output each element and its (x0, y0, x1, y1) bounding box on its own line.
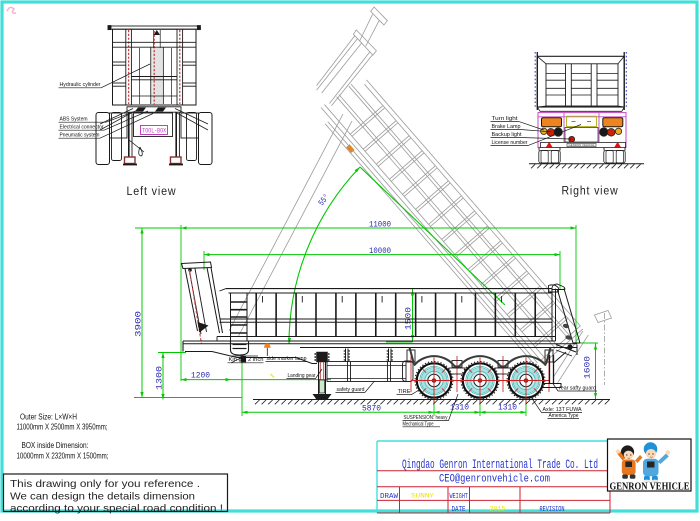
svg-text:We can design the details: We can design the details dimension (10, 491, 195, 503)
svg-text:SUSPENSION: heavy: SUSPENSION: heavy (404, 415, 448, 421)
svg-text:Right view: Right view (562, 183, 619, 197)
svg-text:REVISION: REVISION (540, 506, 565, 514)
svg-text:10000mm X 2320mm X 1500mm;: 10000mm X 2320mm X 1500mm; (17, 450, 109, 460)
svg-text:11000mm X 2500mm X 3950mm;: 11000mm X 2500mm X 3950mm; (17, 421, 108, 431)
svg-text:Electrical connector: Electrical connector (60, 125, 104, 131)
svg-text:GENRON VEHICLE: GENRON VEHICLE (569, 143, 595, 147)
svg-text:TIRE: TIRE (398, 389, 411, 395)
svg-text:3900: 3900 (136, 311, 144, 337)
svg-text:BOX inside Dimension:: BOX inside Dimension: (22, 440, 89, 450)
svg-text:2015: 2015 (490, 505, 506, 513)
svg-text:10000: 10000 (369, 248, 391, 256)
svg-text:DATE: DATE (452, 506, 466, 514)
svg-text:11000: 11000 (369, 221, 391, 229)
svg-text:Kin pin 2 inch: Kin pin 2 inch (229, 357, 264, 363)
svg-text:Pneumatic system: Pneumatic system (60, 133, 100, 139)
svg-text:GENRON VEHICLE: GENRON VEHICLE (610, 482, 690, 493)
svg-text:1300: 1300 (157, 366, 165, 390)
svg-text:ABS System: ABS System (60, 117, 88, 123)
svg-text:DRAW: DRAW (380, 493, 399, 501)
svg-text:SUNNY: SUNNY (411, 492, 434, 499)
svg-text:1600: 1600 (585, 356, 593, 379)
svg-text:Hydraulic cylinder: Hydraulic cylinder (60, 82, 101, 88)
svg-text:5870: 5870 (362, 405, 381, 413)
svg-text:according to your special: according to your special road condition… (10, 502, 223, 514)
svg-text:TOOL-BOX: TOOL-BOX (142, 128, 166, 135)
svg-text:CEO@genronvehicle.com: CEO@genronvehicle.com (439, 473, 550, 485)
svg-text:safety guard: safety guard (337, 387, 365, 393)
svg-text:1200: 1200 (191, 372, 210, 380)
svg-text:1310: 1310 (498, 404, 517, 412)
svg-text:Landing gear: Landing gear (288, 373, 316, 379)
svg-text:This drawing only for you: This drawing only for you reference . (10, 478, 200, 490)
svg-text:WEIGHT: WEIGHT (450, 493, 469, 501)
svg-text:Axle: 13T FUWA: Axle: 13T FUWA (543, 407, 582, 413)
svg-text:Qingdao Genron International T: Qingdao Genron International Trade Co. L… (402, 457, 598, 472)
svg-text:rear safty guard: rear safty guard (559, 385, 596, 391)
svg-text:Outer Size: L×W×H: Outer Size: L×W×H (20, 412, 77, 422)
svg-text:Left view: Left view (127, 184, 177, 198)
svg-text:side marker lamp: side marker lamp (267, 356, 307, 362)
svg-text:1500: 1500 (406, 307, 414, 330)
